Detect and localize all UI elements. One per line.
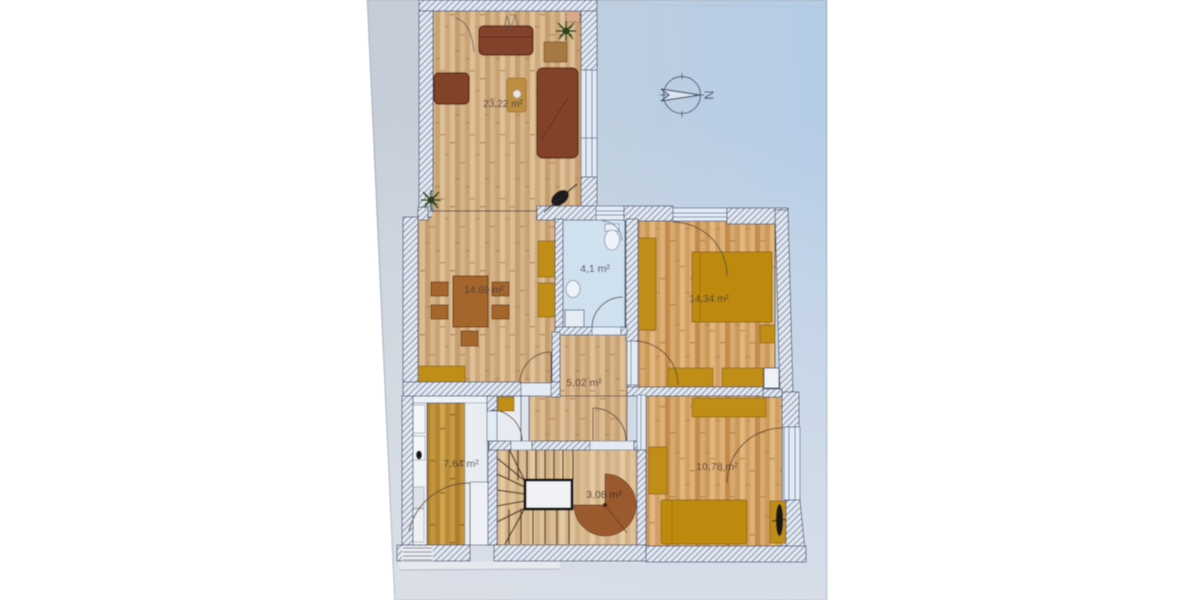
svg-text:4,1 m²: 4,1 m² [580, 263, 610, 275]
svg-text:14,69 m²: 14,69 m² [464, 285, 504, 296]
svg-text:14,34 m²: 14,34 m² [689, 294, 729, 305]
svg-text:3,08 m²: 3,08 m² [586, 489, 622, 501]
svg-text:7,64 m²: 7,64 m² [443, 458, 479, 470]
svg-text:10,78 m²: 10,78 m² [696, 461, 738, 473]
svg-text:5,02 m²: 5,02 m² [566, 377, 602, 389]
svg-text:23,22 m²: 23,22 m² [483, 99, 523, 110]
svg-text:N: N [702, 90, 717, 99]
